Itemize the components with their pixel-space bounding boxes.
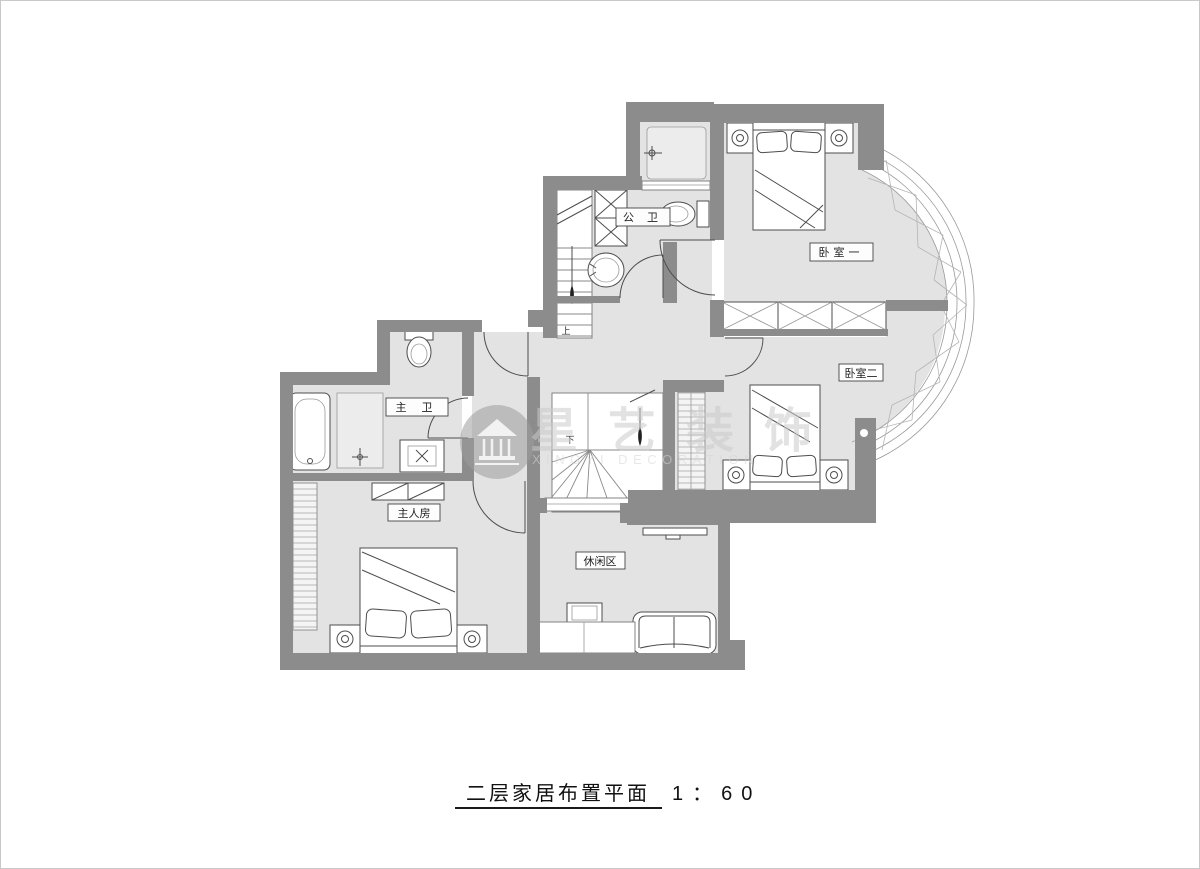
bedroom2-label: 卧室二	[845, 366, 878, 380]
wall-column-marker	[860, 429, 868, 437]
brand-logo-icon	[460, 405, 534, 479]
drawing-title: 二层家居布置平面	[466, 782, 650, 805]
public-bath-label: 公 卫	[623, 212, 663, 224]
bed	[360, 548, 457, 655]
nightstand	[820, 460, 848, 490]
shower-room-threshold	[642, 181, 710, 190]
pillow	[756, 131, 787, 153]
leisure-label: 休闲区	[584, 554, 617, 568]
nightstand	[825, 123, 853, 153]
nightstand	[457, 625, 487, 653]
title-block: 二层家居布置平面 1：60	[455, 782, 761, 808]
wall-shelving	[293, 483, 317, 630]
floor-plan-canvas: 上 下	[0, 0, 1200, 869]
headboard	[748, 482, 822, 491]
toilet	[405, 329, 433, 367]
pillow	[365, 609, 407, 639]
nightstand	[727, 123, 753, 153]
vanity-sink	[400, 440, 444, 472]
sofa	[633, 612, 716, 654]
watermark-brand-en-text: XINGYI DECORATION	[532, 452, 759, 467]
stair-railing	[545, 498, 630, 511]
nightstand	[330, 625, 360, 653]
pillow	[410, 609, 452, 639]
bedroom1-label: 卧室一	[819, 245, 864, 259]
side-table	[567, 603, 602, 623]
upper-stair-direction: 上	[561, 326, 570, 336]
bathtub	[290, 393, 330, 470]
shower-room-fixtures	[644, 127, 706, 179]
master-bath-label: 主 卫	[395, 401, 438, 414]
master-bedroom-label: 主人房	[398, 507, 431, 520]
watermark-brand-text: 星艺装饰	[530, 405, 842, 458]
pillow	[786, 455, 816, 477]
dresser	[372, 483, 444, 500]
low-cabinet	[533, 622, 635, 653]
upper-staircase: 上	[557, 190, 592, 338]
drawing-scale: 1：60	[672, 783, 761, 805]
pillow	[790, 131, 821, 153]
wardrobe-row	[722, 302, 886, 330]
